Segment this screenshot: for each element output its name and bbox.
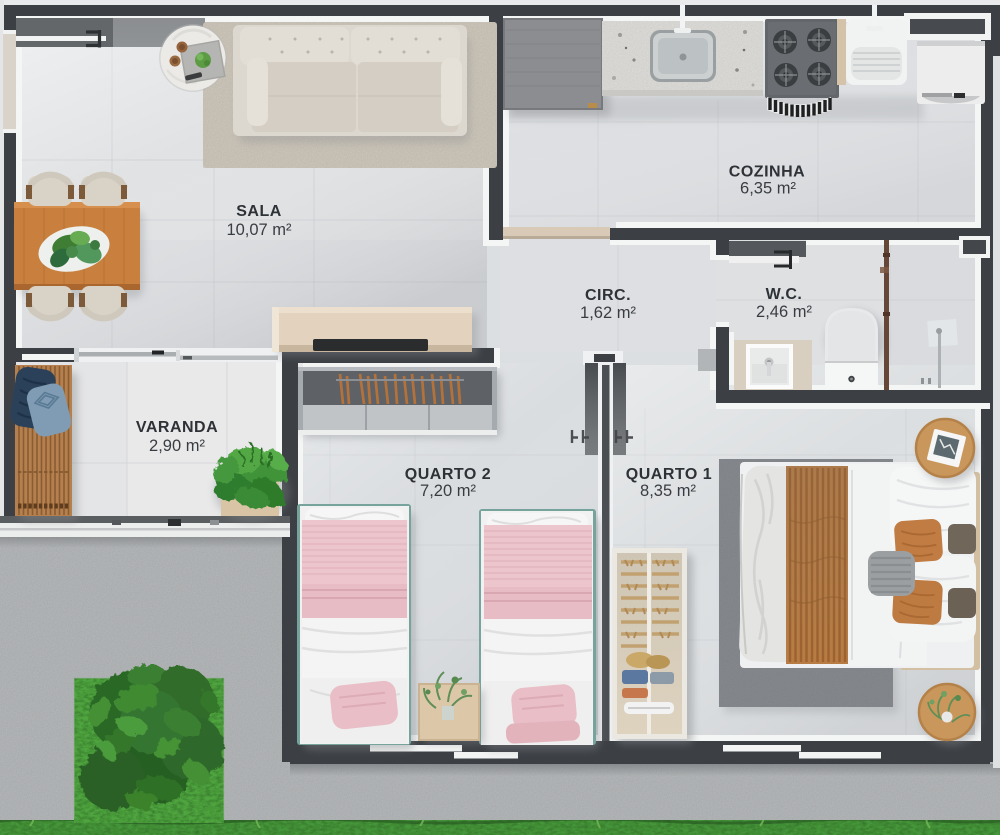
svg-text:QUARTO 1: QUARTO 1 <box>626 466 712 483</box>
svg-text:W.C.: W.C. <box>766 286 803 303</box>
svg-text:7,20 m²: 7,20 m² <box>420 482 476 500</box>
svg-text:1,62 m²: 1,62 m² <box>580 304 636 322</box>
svg-text:COZINHA: COZINHA <box>729 164 805 181</box>
svg-text:2,46 m²: 2,46 m² <box>756 303 812 321</box>
svg-text:2,90 m²: 2,90 m² <box>149 437 205 455</box>
svg-text:10,07 m²: 10,07 m² <box>226 221 292 239</box>
svg-text:SALA: SALA <box>236 203 282 220</box>
svg-text:CIRC.: CIRC. <box>585 287 631 304</box>
svg-text:QUARTO 2: QUARTO 2 <box>405 466 491 483</box>
svg-text:VARANDA: VARANDA <box>136 419 218 436</box>
svg-text:6,35 m²: 6,35 m² <box>740 180 796 198</box>
svg-text:8,35 m²: 8,35 m² <box>640 482 696 500</box>
